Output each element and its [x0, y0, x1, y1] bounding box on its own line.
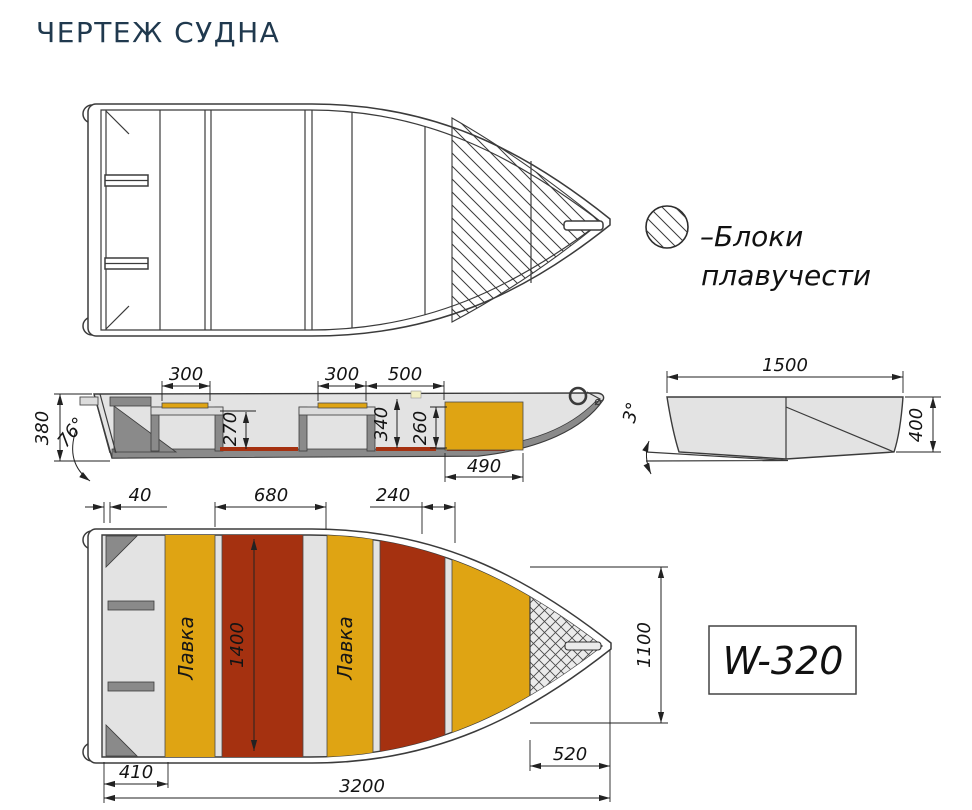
plan-view: Лавка Лавка 40 680 240 14: [83, 485, 668, 803]
legend: –Блоки плавучести: [646, 206, 871, 292]
dim-stern-section: 410: [104, 762, 168, 788]
oarlock-pad: [105, 175, 148, 186]
boat-drawing-page: ЧЕРТЕЖ СУДНА: [0, 0, 972, 810]
dim-transom-angle-label: 76°: [54, 414, 90, 452]
bench-label: Лавка: [174, 616, 198, 680]
motor-pad: [80, 397, 98, 405]
dim-seat-clearance-label: 270: [220, 412, 241, 446]
dim-bow-width-label: 1100: [634, 622, 655, 668]
model-badge-label: W-320: [723, 639, 844, 683]
stern-deck-band: [110, 397, 151, 406]
dim-bottom-angle-label: 3°: [619, 400, 645, 425]
side-view: 300 300 500 380 76°: [32, 364, 604, 482]
dim-transom-thickness-label: 40: [129, 485, 152, 506]
bench-label: Лавка: [333, 616, 357, 680]
dim-cockpit-section: 680: [215, 485, 326, 529]
legend-label-line2: плавучести: [701, 259, 871, 292]
gunwale-pad: [411, 391, 421, 398]
floor-band: [380, 528, 445, 764]
buoyancy-swatch-hatch: [646, 206, 688, 248]
oarlock-pad: [108, 682, 154, 691]
floor-strip: [376, 447, 436, 451]
dim-transom-thickness: 40: [85, 485, 167, 523]
dim-seat-rear-label: 300: [325, 364, 359, 385]
dim-transom-angle: 76°: [54, 414, 90, 481]
bench-seat-strip: [318, 403, 367, 408]
model-badge: W-320: [709, 626, 856, 694]
dim-transom-height-label: 380: [32, 411, 53, 445]
dim-side-height-label: 400: [906, 408, 927, 442]
bow-buoyancy-block: [445, 402, 523, 450]
bow-handle-icon: [564, 221, 603, 230]
dim-seat-front-label: 300: [169, 364, 203, 385]
dim-overall-length: 3200: [104, 762, 610, 803]
section-hull: [667, 397, 903, 459]
dim-overall-length-label: 3200: [339, 776, 385, 797]
dim-bow-length-label: 520: [553, 744, 587, 765]
boat-drawing-svg: –Блоки плавучести: [0, 0, 972, 810]
oarlock-pad: [105, 258, 148, 269]
top-view: [83, 100, 610, 340]
dim-beam: 1500: [667, 355, 903, 393]
buoyancy-hatch-bow: [452, 118, 601, 322]
legend-label-line1: –Блоки: [700, 220, 803, 253]
bow-handle-icon: [565, 642, 601, 650]
bench-seat-strip: [162, 403, 208, 408]
dim-block-height-label: 260: [410, 411, 431, 445]
dim-beam-label: 1500: [762, 355, 808, 376]
dim-cockpit-section-label: 680: [254, 485, 288, 506]
dim-bay-length-label: 500: [388, 364, 422, 385]
section-view: 3° 1500 400: [619, 355, 941, 474]
dim-bay-depth-label: 340: [371, 407, 392, 441]
dim-bow-seat-label: 240: [376, 485, 410, 506]
dim-cockpit-width-label: 1400: [227, 622, 248, 668]
oarlock-pad: [108, 601, 154, 610]
dim-stern-section-label: 410: [119, 762, 153, 783]
dim-bottom-angle: 3°: [619, 400, 651, 474]
floor-strip: [220, 447, 298, 451]
dim-block-length: 490: [445, 453, 523, 482]
dim-block-length-label: 490: [467, 456, 501, 477]
